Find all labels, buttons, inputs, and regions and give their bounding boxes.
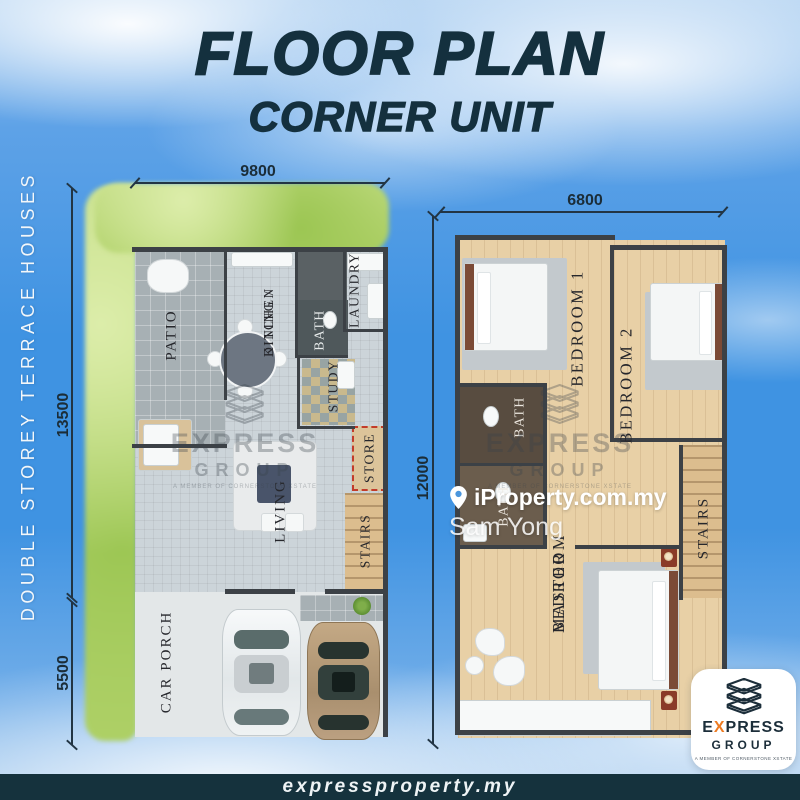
badge-brand: EXPRESS [702, 719, 785, 737]
room-label-store: STORE [362, 433, 379, 483]
wall [383, 247, 388, 737]
lounge-chair [475, 628, 505, 656]
car-roof [234, 655, 289, 693]
headboard [465, 264, 474, 350]
wall [722, 245, 727, 735]
dimension-value-9800: 9800 [240, 163, 276, 181]
dimension-line-top-gf [135, 182, 385, 184]
agent-name: Sam Yong [449, 513, 563, 542]
pillow [652, 581, 666, 681]
patio-chair [147, 259, 189, 293]
dimension-line-top-ff [440, 211, 723, 213]
kitchen-counter [231, 252, 293, 267]
room-label-stairs-gf: STAIRS [358, 514, 375, 568]
car-rear-window [234, 709, 289, 725]
car-roof [318, 665, 369, 700]
wall [325, 589, 387, 594]
room-label-study: STUDY [326, 360, 343, 413]
dimension-value-13500: 13500 [55, 393, 73, 438]
room-label-bath-gf: BATH [312, 309, 329, 350]
lamp-icon [664, 552, 673, 561]
car-sunroof [249, 663, 273, 684]
headboard [669, 571, 678, 689]
nightstand [661, 691, 677, 710]
watermark-brand2: GROUP [194, 460, 295, 481]
side-table [465, 656, 484, 675]
kitchen-counter-dark [295, 250, 347, 300]
wall [575, 545, 683, 549]
poster: FLOOR PLAN CORNER UNIT DOUBLE STOREY TER… [0, 0, 800, 800]
wall [225, 589, 295, 594]
iproperty-watermark: iProperty.com.my [450, 484, 667, 511]
badge-brand-x: X [714, 719, 726, 736]
room-label-car-porch: CAR PORCH [158, 611, 177, 714]
bronze-car [307, 622, 380, 740]
badge-brand-press: PRESS [726, 719, 785, 736]
room-label-laundry: LAUNDRY [347, 252, 364, 328]
bed-icon [598, 570, 679, 690]
wall [295, 355, 348, 358]
stacked-layers-icon [221, 384, 269, 426]
portal-name: iProperty.com.my [474, 484, 667, 511]
badge-brand2: GROUP [711, 738, 775, 752]
website-url: expressproperty.my [283, 776, 518, 798]
wall [679, 445, 683, 600]
wall [343, 329, 388, 332]
car-windshield [318, 642, 369, 659]
watermark-brand: EXPRESS [171, 428, 320, 459]
side-caption-text: DOUBLE STOREY TERRACE HOUSES [18, 171, 39, 621]
wall [343, 250, 346, 332]
side-caption: DOUBLE STOREY TERRACE HOUSES [10, 186, 46, 606]
lamp-icon [664, 695, 673, 704]
car-rear-window [318, 715, 369, 730]
watermark-brand: EXPRESS [486, 428, 635, 459]
white-car [222, 609, 301, 736]
dimension-value-12000: 12000 [415, 456, 433, 501]
pillow [477, 272, 491, 344]
bed-icon [464, 263, 548, 351]
room-label-master-line2: BEDROOM [549, 533, 570, 633]
watermark-tagline: A MEMBER OF CORNERSTONE XSTATE [173, 484, 317, 490]
page-title: FLOOR PLAN [0, 24, 800, 84]
pillow [699, 291, 712, 355]
wall [610, 245, 727, 250]
badge-brand-e: E [702, 719, 714, 736]
wall [224, 250, 227, 400]
dimension-value-6800: 6800 [567, 192, 603, 210]
car-sunroof [332, 672, 354, 691]
express-group-badge: EXPRESS GROUP A MEMBER OF CORNERSTONE XS… [691, 669, 796, 770]
wall [295, 250, 298, 358]
plant-icon [353, 597, 371, 615]
wall [455, 730, 727, 735]
watermark-express-group: EXPRESS GROUP A MEMBER OF CORNERSTONE XS… [486, 384, 635, 490]
watermark-express-group: EXPRESS GROUP A MEMBER OF CORNERSTONE XS… [171, 384, 320, 490]
stacked-layers-icon [536, 384, 584, 426]
express-logo-icon [721, 678, 767, 716]
wall [455, 235, 615, 240]
room-label-dining-line2: KITCHEN [261, 287, 278, 357]
footer-bar: expressproperty.my [0, 774, 800, 800]
watermark-brand2: GROUP [509, 460, 610, 481]
room-label-patio: PATIO [163, 309, 182, 360]
porch-walkway [300, 595, 387, 621]
wall [455, 545, 547, 549]
room-label-bedroom1: BEDROOM 1 [568, 269, 589, 386]
dimension-value-5500: 5500 [55, 655, 73, 691]
badge-tagline: A MEMBER OF CORNERSTONE XSTATE [695, 756, 793, 761]
room-label-stairs-ff: STAIRS [695, 497, 714, 559]
location-pin-icon [450, 486, 467, 509]
lounge-chair [493, 656, 525, 686]
car-windshield [234, 630, 289, 649]
grass-top [95, 183, 389, 253]
bed-icon [650, 283, 725, 361]
nightstand [661, 548, 677, 567]
page-subtitle: CORNER UNIT [0, 96, 800, 138]
grass-left [85, 185, 137, 741]
